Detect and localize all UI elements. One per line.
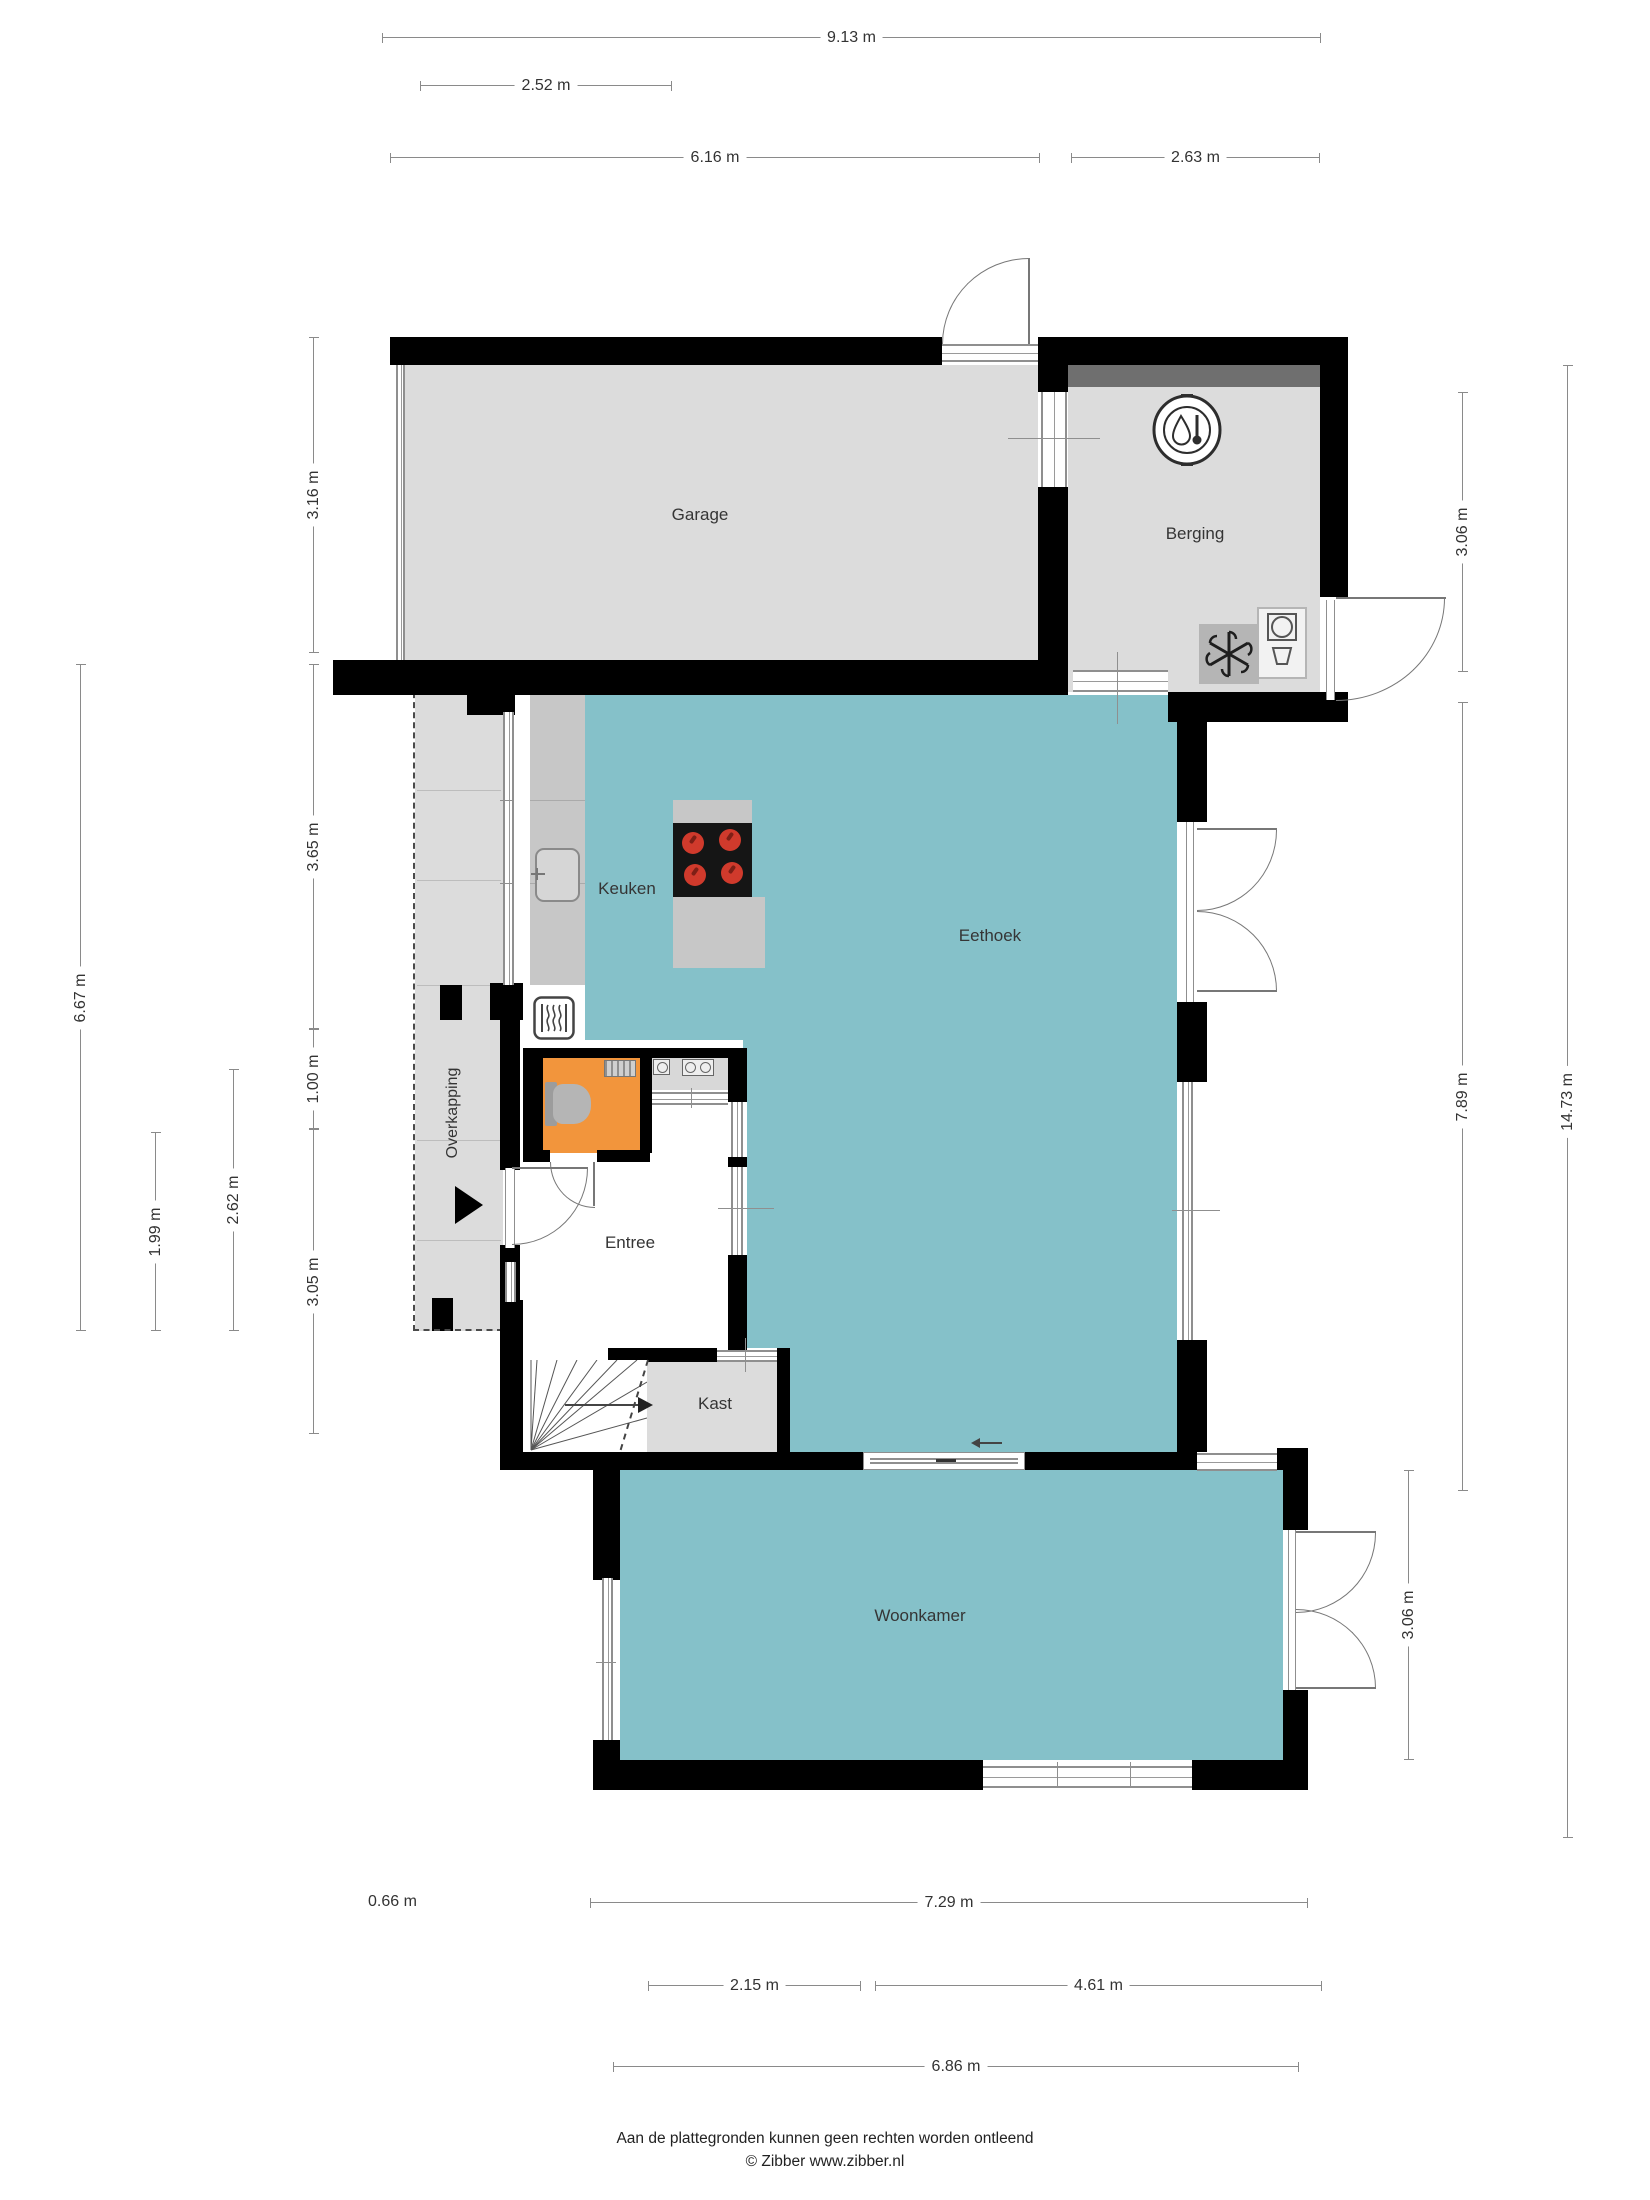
room-label-overkapping: Overkapping bbox=[444, 1068, 462, 1159]
overkapping-dashed-edge bbox=[413, 662, 415, 1331]
dimension-line: 3.05 m bbox=[313, 1129, 314, 1434]
window bbox=[731, 1102, 743, 1157]
eethoek-floor-right bbox=[747, 1048, 1177, 1348]
dimension-label: 7.89 m bbox=[1454, 1065, 1472, 1128]
cooktop-icon bbox=[673, 823, 752, 897]
kitchen-island-top bbox=[673, 800, 752, 823]
wall bbox=[1177, 1002, 1207, 1082]
dimension-label: 6.67 m bbox=[72, 966, 90, 1029]
window bbox=[731, 1167, 743, 1255]
wall bbox=[1177, 1340, 1207, 1452]
window bbox=[1197, 1453, 1277, 1471]
dimension-label: 3.06 m bbox=[1400, 1584, 1418, 1647]
dimension-label: 3.05 m bbox=[305, 1250, 323, 1313]
dimension-line: 1.99 m bbox=[155, 1132, 156, 1331]
room-label-berging: Berging bbox=[1166, 524, 1225, 544]
dimension-line: 3.16 m bbox=[313, 337, 314, 653]
wall bbox=[500, 1300, 523, 1452]
dimension-line: 3.06 m bbox=[1408, 1470, 1409, 1760]
door-arc bbox=[1197, 911, 1277, 991]
dimension-label: 2.63 m bbox=[1164, 149, 1227, 167]
window bbox=[1073, 670, 1168, 692]
radiator-icon bbox=[604, 1060, 636, 1077]
dimension-label: 3.16 m bbox=[305, 464, 323, 527]
dimension-label: 9.13 m bbox=[820, 29, 883, 47]
window bbox=[503, 712, 514, 985]
door-arc bbox=[942, 258, 1029, 344]
dimension-line: 2.52 m bbox=[420, 85, 672, 86]
nook-opening bbox=[652, 1092, 728, 1105]
window bbox=[983, 1766, 1192, 1788]
wall bbox=[777, 1348, 790, 1362]
dimension-line: 3.65 m bbox=[313, 664, 314, 1029]
window bbox=[505, 1262, 516, 1302]
dimension-line: 1.00 m bbox=[313, 1029, 314, 1129]
wall bbox=[728, 1157, 747, 1167]
wall bbox=[1283, 1470, 1308, 1530]
wall bbox=[1177, 695, 1207, 822]
dimension-label: 6.86 m bbox=[925, 2058, 988, 2076]
overkapping-dashed-bottom bbox=[413, 1329, 503, 1331]
door-opening bbox=[1186, 822, 1194, 1002]
wall bbox=[1277, 1448, 1308, 1470]
stairs-arrow-icon bbox=[638, 1397, 653, 1413]
wall bbox=[1320, 365, 1348, 597]
dimension-line: 6.86 m bbox=[613, 2066, 1299, 2067]
disclaimer-text: Aan de plattegronden kunnen geen rechten… bbox=[0, 2130, 1650, 2148]
wall bbox=[500, 1020, 520, 1170]
overkapping-post bbox=[432, 1298, 453, 1331]
window bbox=[717, 1350, 777, 1362]
geiser-icon bbox=[682, 1059, 714, 1076]
room-label-kast: Kast bbox=[698, 1394, 732, 1414]
wall bbox=[500, 1452, 863, 1470]
door-arc bbox=[1296, 1533, 1376, 1613]
wall bbox=[523, 1048, 747, 1058]
eethoek-floor-south bbox=[790, 1348, 1177, 1452]
wall bbox=[593, 1760, 983, 1790]
radiator-icon bbox=[533, 996, 575, 1040]
wall bbox=[523, 1058, 543, 1162]
wall bbox=[1038, 337, 1348, 365]
wall bbox=[640, 1058, 652, 1153]
dimension-label: 2.62 m bbox=[225, 1169, 243, 1232]
dimension-line: 6.16 m bbox=[390, 157, 1040, 158]
stairs-direction-line bbox=[565, 1404, 641, 1406]
dimension-line: 9.13 m bbox=[382, 37, 1321, 38]
room-label-eethoek: Eethoek bbox=[959, 926, 1021, 946]
wall bbox=[1038, 365, 1068, 392]
door-arc bbox=[1197, 830, 1277, 911]
door-opening bbox=[1288, 1530, 1296, 1690]
faucet-icon bbox=[531, 873, 545, 875]
dimension-label: 3.06 m bbox=[1454, 501, 1472, 564]
room-label-woonkamer: Woonkamer bbox=[874, 1606, 965, 1626]
sink-icon bbox=[535, 848, 580, 902]
kitchen-island-bottom bbox=[673, 897, 765, 968]
wall bbox=[728, 1048, 747, 1102]
kitchen-counter bbox=[530, 695, 585, 985]
wall bbox=[538, 1150, 550, 1162]
dimension-line: 6.67 m bbox=[80, 664, 81, 1331]
dimension-line: 3.06 m bbox=[1462, 392, 1463, 672]
washing-machine-icon bbox=[1256, 606, 1308, 680]
wall bbox=[490, 983, 523, 1020]
dimension-line: 2.62 m bbox=[233, 1069, 234, 1331]
dimension-line: 2.15 m bbox=[648, 1985, 861, 1986]
wall bbox=[593, 1470, 620, 1580]
wall bbox=[1283, 1690, 1308, 1790]
wall bbox=[333, 660, 1038, 695]
door-opening bbox=[942, 344, 1038, 362]
berging-workbench-strip bbox=[1068, 365, 1320, 387]
window bbox=[1041, 392, 1067, 487]
overkapping-post bbox=[440, 985, 462, 1020]
entrance-arrow-icon bbox=[455, 1186, 483, 1224]
dimension-label: 0.66 m bbox=[368, 1893, 417, 1911]
window bbox=[396, 365, 405, 660]
door-arc bbox=[1336, 598, 1445, 701]
window bbox=[1182, 1082, 1193, 1340]
boiler-thermometer-icon bbox=[1152, 394, 1222, 466]
door-opening bbox=[1326, 600, 1335, 700]
window bbox=[602, 1578, 613, 1740]
dimension-label: 6.16 m bbox=[684, 149, 747, 167]
dimension-label: 1.99 m bbox=[147, 1200, 165, 1263]
slider-arrow-icon bbox=[978, 1442, 1002, 1444]
dimension-line: 2.63 m bbox=[1071, 157, 1320, 158]
copyright-text: © Zibber www.zibber.nl bbox=[0, 2153, 1650, 2171]
dimension-line: 4.61 m bbox=[875, 1985, 1322, 1986]
dimension-label: 3.65 m bbox=[305, 815, 323, 878]
room-label-garage: Garage bbox=[672, 505, 729, 525]
wall bbox=[777, 1362, 790, 1452]
dimension-label: 7.29 m bbox=[918, 1894, 981, 1912]
slider-center-mark bbox=[936, 1459, 956, 1462]
ventilation-fan-icon bbox=[1199, 624, 1259, 684]
dimension-line: 7.29 m bbox=[590, 1902, 1308, 1903]
dimension-label: 4.61 m bbox=[1067, 1977, 1130, 1995]
fontein-icon bbox=[653, 1059, 670, 1075]
dimension-line: 7.89 m bbox=[1462, 702, 1463, 1491]
toilet-bowl bbox=[553, 1084, 591, 1124]
floor-plan-canvas: Garage Berging Keuken Eethoek Entree Kas… bbox=[0, 0, 1650, 2200]
dimension-label: 14.73 m bbox=[1559, 1066, 1577, 1138]
wall bbox=[1025, 1452, 1197, 1470]
room-label-keuken: Keuken bbox=[598, 879, 656, 899]
wall bbox=[597, 1150, 650, 1162]
wall bbox=[390, 337, 942, 365]
dimension-line: 14.73 m bbox=[1567, 365, 1568, 1838]
dimension-label: 2.52 m bbox=[515, 77, 578, 95]
room-label-entree: Entree bbox=[605, 1233, 655, 1253]
door-arc bbox=[1296, 1609, 1376, 1688]
dimension-label: 1.00 m bbox=[305, 1048, 323, 1111]
dimension-label: 2.15 m bbox=[723, 1977, 786, 1995]
wall bbox=[1038, 487, 1068, 695]
